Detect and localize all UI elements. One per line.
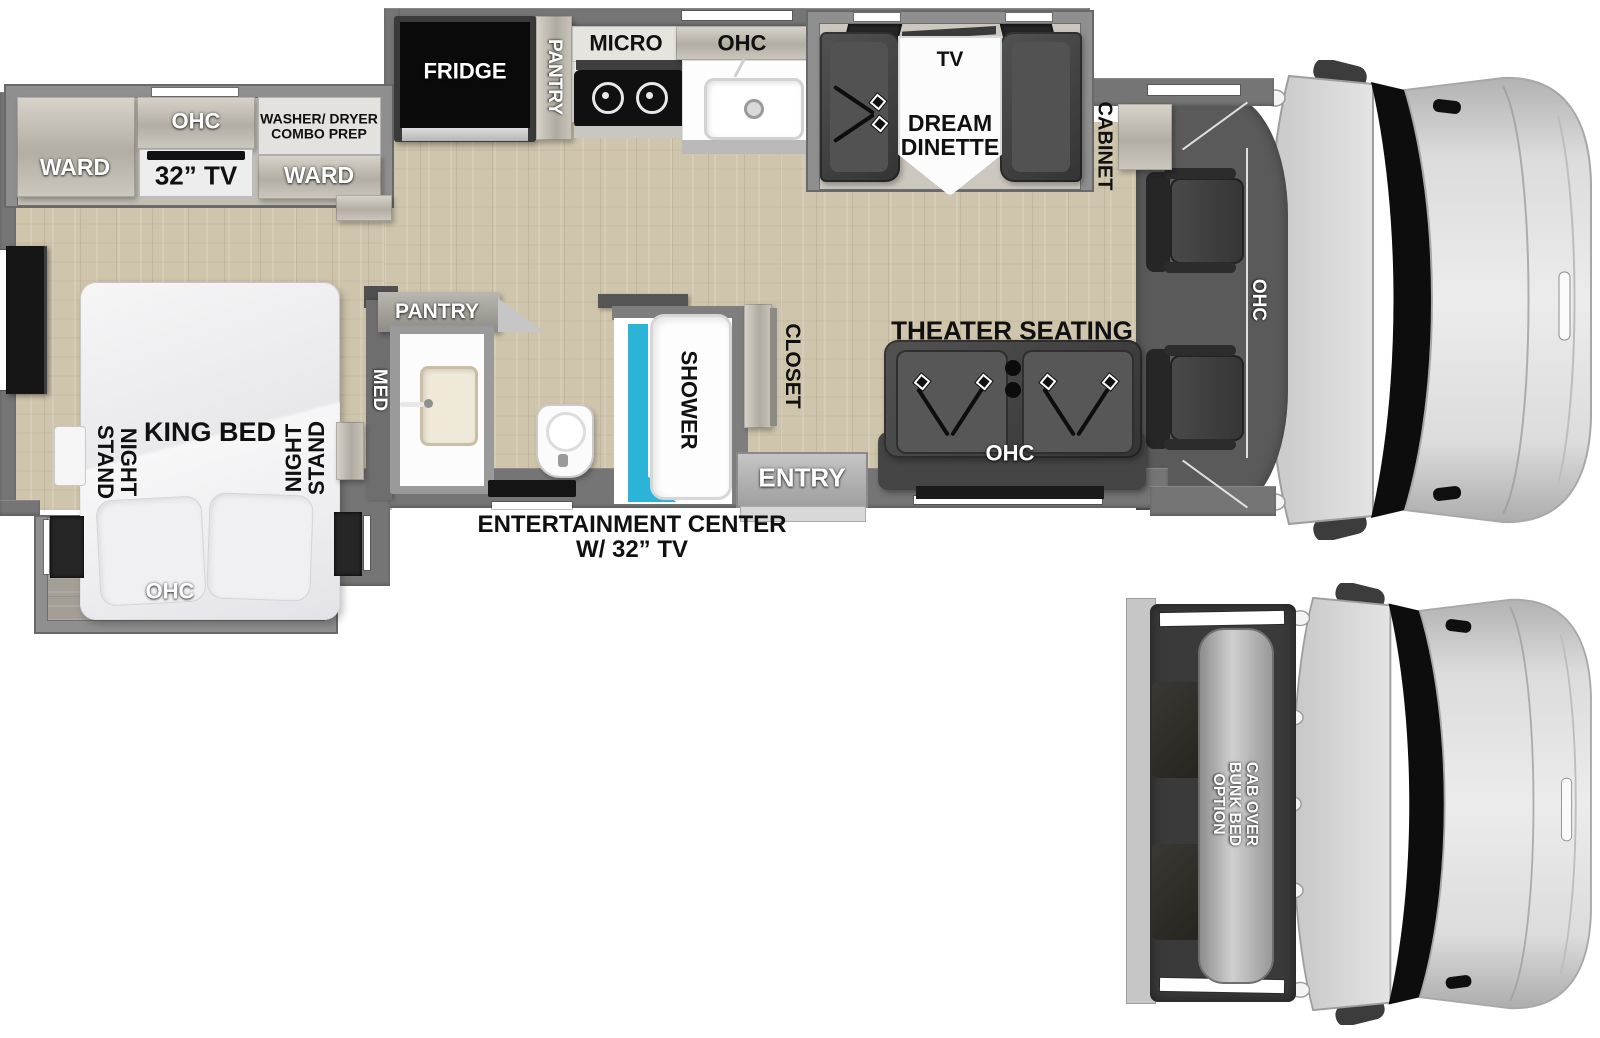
driver-chair-backrest [1146, 172, 1170, 272]
sink-drain-icon [744, 99, 764, 119]
burner-center-icon [646, 92, 653, 99]
bunk-option-label: CAB OVER BUNK BED OPTION [1209, 753, 1259, 855]
micro-label: MICRO [589, 33, 662, 56]
driver-chair-seat [1170, 178, 1244, 264]
driver-chair-armrest [1164, 262, 1236, 273]
med-cabinet-label: MED [369, 369, 389, 411]
theater-seating-label: THEATER SEATING [891, 317, 1133, 344]
washer-dryer-label: WASHER/ DRYER COMBO PREP [258, 111, 380, 140]
fridge-label: FRIDGE [423, 61, 506, 84]
burner-center-icon [602, 92, 609, 99]
dinette-tv-label: TV [937, 49, 964, 71]
cooktop-base [574, 126, 686, 138]
dinette-label: DREAM DINETTE [897, 112, 1003, 160]
bedroom-foot-ohc-label: OHC [146, 581, 195, 604]
night-stand-right-label: NIGHT STAND [283, 417, 329, 499]
bedroom-bottom-corner-wall [0, 500, 40, 516]
bath-pantry-label: PANTRY [395, 301, 479, 323]
wardrobe-left-label: WARD [40, 156, 110, 180]
theater-cushion-left [896, 350, 1008, 454]
burner-icon [592, 82, 624, 114]
night-stand-right [336, 422, 364, 480]
burner-icon [636, 82, 668, 114]
cooktop [574, 70, 686, 128]
closet-cabinet-side [770, 308, 777, 426]
truck-cab-top-view [1253, 60, 1600, 540]
closet-label: CLOSET [781, 323, 803, 408]
bedroom-window [334, 512, 362, 576]
range-hood [576, 60, 682, 70]
bunk-seat [1152, 844, 1202, 940]
bedroom-slide-window-slot [152, 88, 238, 96]
closet-cabinet [744, 304, 772, 428]
cab-wall-window-slot [1148, 85, 1240, 95]
counter-edge [682, 140, 810, 154]
passenger-chair-armrest [1164, 345, 1236, 356]
cupholder-icon [1005, 382, 1021, 398]
truck-cab-bunk-view [1280, 583, 1600, 1025]
dinette-window-slot [1006, 13, 1052, 21]
bath-faucet-icon [400, 402, 424, 407]
bedroom-ohc-label: OHC [172, 111, 221, 134]
bedroom-wall-tv [6, 246, 47, 394]
bedroom-32in-tv [147, 151, 245, 160]
kitchen-ohc-label: OHC [718, 33, 767, 56]
night-stand-left-label: NIGHT STAND [93, 421, 139, 503]
cab-ohc-label: OHC [1248, 279, 1268, 321]
fridge-base [402, 128, 528, 141]
entertainment-center-label: ENTERTAINMENT CENTER W/ 32” TV [478, 513, 787, 563]
bath-wall-window-slot [492, 502, 572, 509]
bunk-seat [1152, 682, 1202, 778]
bunk-marker-strip [1160, 611, 1284, 626]
kitchen-window-slot [682, 11, 792, 20]
shower-glass-accent [628, 324, 648, 482]
passenger-chair-armrest [1164, 439, 1236, 450]
driver-chair-armrest [1164, 168, 1236, 179]
entertainment-center-label-line1: ENTERTAINMENT CENTER [478, 513, 787, 538]
bath-faucet-base-icon [424, 399, 433, 408]
entry-label: ENTRY [758, 464, 845, 491]
theater-ohc-label: OHC [986, 443, 1035, 466]
theater-cushion-right [1022, 350, 1134, 454]
bedroom-tv-label: 32” TV [155, 162, 237, 189]
shower-label: SHOWER [677, 351, 700, 450]
theater-base-trim [916, 486, 1104, 499]
dinette-bench-right-cushion [1012, 42, 1070, 172]
entertainment-center-label-line2: W/ 32” TV [478, 538, 787, 563]
night-stand-left [54, 426, 86, 486]
king-bed-label: KING BED [144, 418, 276, 446]
cupholder-icon [1005, 360, 1021, 376]
wardrobe-left [17, 97, 135, 197]
bedroom-window-slot [364, 516, 370, 570]
slide-end-cabinet [336, 195, 392, 221]
dinette-window-slot [854, 13, 900, 21]
bedroom-side-window-slot [0, 250, 6, 390]
bedroom-window [50, 516, 84, 578]
toilet-flush-icon [558, 454, 568, 467]
rv-floorplan-diagram: OHC WARD OHC 32” TV WASHER/ DRYER COMBO … [0, 0, 1600, 1038]
passenger-chair-backrest [1146, 349, 1170, 449]
entertainment-center-tv [488, 480, 576, 497]
bedroom-window-slot [44, 520, 49, 574]
cabinet-label: CABINET [1094, 102, 1115, 191]
toilet-seat-icon [546, 412, 586, 452]
cab-bottom-wall [1150, 486, 1276, 516]
front-cabinet [1118, 104, 1172, 170]
wardrobe-right-label: WARD [284, 164, 354, 188]
passenger-chair-seat [1170, 355, 1244, 441]
pillow [206, 492, 314, 602]
kitchen-pantry-label: PANTRY [544, 39, 564, 115]
